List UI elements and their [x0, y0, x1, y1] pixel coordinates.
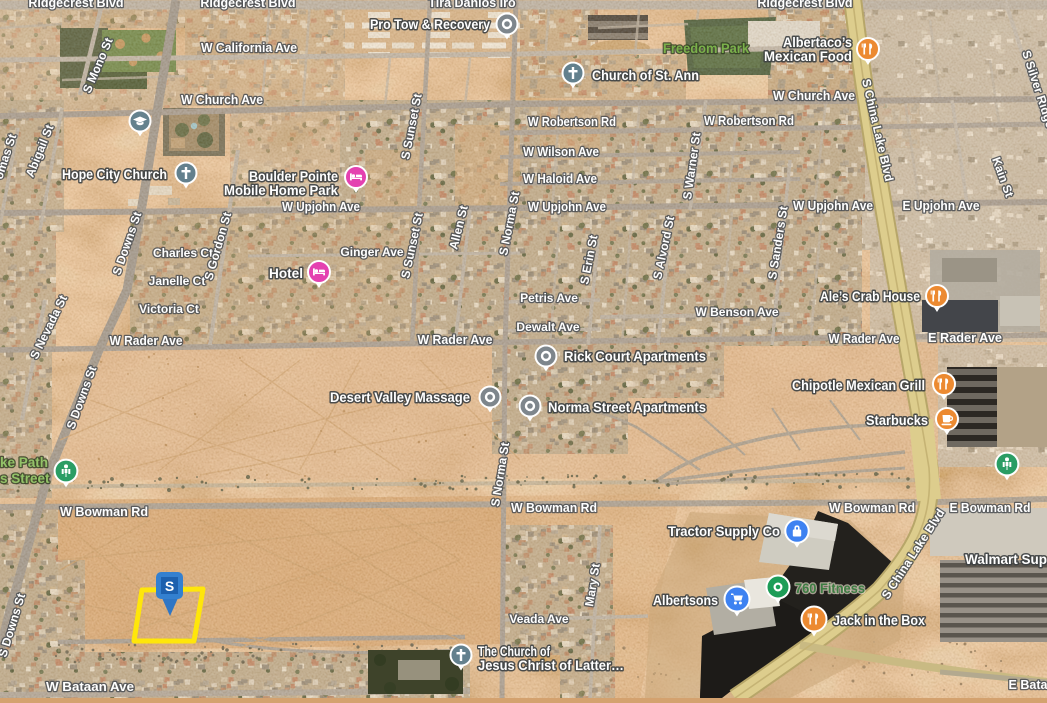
svg-text:E Bata: E Bata [1009, 678, 1047, 692]
svg-text:Ale’s Crab House: Ale’s Crab House [820, 289, 920, 304]
svg-text:Veada Ave: Veada Ave [509, 612, 568, 626]
svg-text:W Rader Ave: W Rader Ave [110, 334, 183, 348]
svg-text:Chipotle Mexican Grill: Chipotle Mexican Grill [792, 378, 925, 393]
svg-text:W Upjohn Ave: W Upjohn Ave [528, 200, 606, 214]
svg-text:Starbucks: Starbucks [866, 413, 928, 428]
svg-text:S: S [165, 578, 174, 594]
svg-text:W Bowman Rd: W Bowman Rd [829, 501, 915, 515]
svg-text:Walmart Sup: Walmart Sup [965, 552, 1047, 567]
svg-text:ke Path: ke Path [0, 455, 48, 470]
svg-text:W Rader Ave: W Rader Ave [829, 332, 900, 346]
svg-text:Church of St. Ann: Church of St. Ann [592, 68, 699, 83]
svg-text:The Church of: The Church of [478, 644, 550, 659]
svg-text:W Church Ave: W Church Ave [773, 89, 855, 103]
svg-text:W Bowman Rd: W Bowman Rd [60, 505, 148, 519]
svg-text:Hotel: Hotel [269, 266, 303, 281]
svg-text:W Robertson Rd: W Robertson Rd [704, 114, 794, 128]
svg-text:Albertaco’s: Albertaco’s [783, 35, 852, 50]
svg-text:Ridgecrest Blvd: Ridgecrest Blvd [200, 0, 295, 10]
svg-text:W Wilson Ave: W Wilson Ave [523, 145, 599, 159]
svg-text:Ginger Ave: Ginger Ave [340, 245, 403, 259]
svg-text:Victoria Ct: Victoria Ct [139, 302, 199, 316]
svg-text:Albertsons: Albertsons [653, 593, 718, 608]
svg-text:Mexican Food: Mexican Food [764, 49, 852, 64]
svg-text:Charles Ct: Charles Ct [153, 246, 213, 260]
svg-text:W Rader Ave: W Rader Ave [418, 333, 493, 347]
svg-text:760 Fitness: 760 Fitness [795, 581, 865, 596]
svg-text:E Bowman Rd: E Bowman Rd [950, 501, 1031, 515]
svg-text:Pro Tow & Recovery: Pro Tow & Recovery [370, 17, 490, 32]
svg-text:Janelle Ct: Janelle Ct [149, 274, 206, 288]
svg-text:Hope City Church: Hope City Church [62, 167, 167, 182]
svg-text:Boulder Pointe: Boulder Pointe [249, 169, 338, 184]
svg-text:Norma Street Apartments: Norma Street Apartments [548, 400, 706, 415]
svg-text:W Upjohn Ave: W Upjohn Ave [282, 200, 360, 214]
svg-text:W Benson Ave: W Benson Ave [695, 305, 778, 319]
svg-text:Mobile Home Park: Mobile Home Park [224, 183, 338, 198]
svg-text:E Rader Ave: E Rader Ave [928, 331, 1002, 345]
svg-text:W Upjohn Ave: W Upjohn Ave [793, 199, 873, 213]
svg-text:Ridgecrest Blvd: Ridgecrest Blvd [28, 0, 123, 10]
svg-text:W California Ave: W California Ave [201, 41, 297, 55]
svg-text:Rick Court Apartments: Rick Court Apartments [564, 349, 706, 364]
svg-text:W Bowman Rd: W Bowman Rd [511, 501, 597, 515]
svg-text:Freedom Park: Freedom Park [663, 41, 749, 56]
svg-text:Jack in the Box: Jack in the Box [833, 613, 925, 628]
svg-text:Ridgecrest Blvd: Ridgecrest Blvd [757, 0, 852, 10]
svg-text:Jesus Christ of Latter…: Jesus Christ of Latter… [478, 658, 624, 673]
svg-text:Desert Valley Massage: Desert Valley Massage [330, 390, 470, 405]
svg-text:W Robertson Rd: W Robertson Rd [528, 115, 616, 129]
svg-text:E Upjohn Ave: E Upjohn Ave [903, 199, 980, 213]
svg-text:W Haloid Ave: W Haloid Ave [523, 172, 597, 186]
svg-text:W Bataan Ave: W Bataan Ave [46, 680, 134, 694]
svg-text:Petris Ave: Petris Ave [520, 291, 578, 305]
svg-text:s Street: s Street [0, 471, 50, 486]
svg-text:Tractor Supply Co: Tractor Supply Co [668, 524, 780, 539]
svg-text:W Church Ave: W Church Ave [181, 93, 263, 107]
svg-text:Dewalt Ave: Dewalt Ave [516, 320, 579, 334]
svg-text:Tira Danios Iro: Tira Danios Iro [428, 0, 516, 10]
